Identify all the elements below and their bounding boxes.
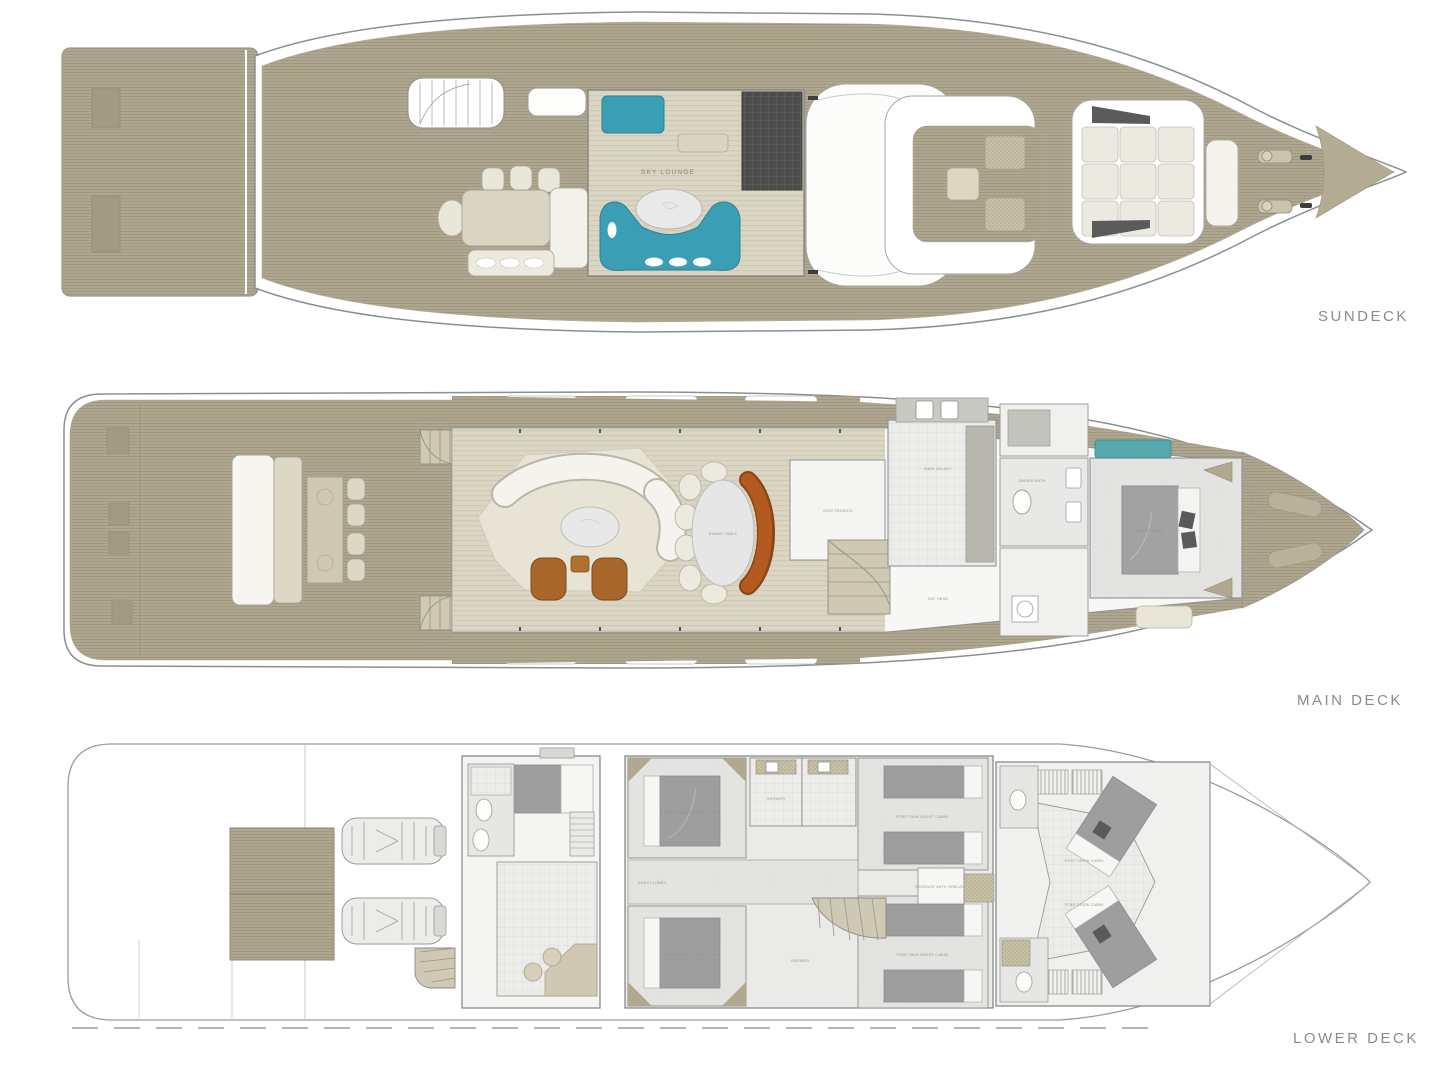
helm-table <box>985 198 1025 231</box>
salon-armchair <box>592 558 627 600</box>
tender-garage-hatch <box>230 828 334 960</box>
aft-table <box>307 477 343 583</box>
helm-table-small <box>947 168 979 200</box>
salon-armchair <box>531 558 566 600</box>
main-deck-plan: SIDE DECK SIDE DECK <box>64 392 1372 668</box>
jet-tender <box>342 818 446 864</box>
deck-hatch <box>112 600 132 624</box>
day-head-label: DAY HEAD <box>928 597 949 601</box>
storage-label: STORAGE WITH SHELVES <box>915 885 967 889</box>
owner-bath: OWNER BATH <box>1000 404 1088 636</box>
sundeck-stairs <box>408 78 504 128</box>
galley-sink <box>941 401 958 419</box>
deck-hatch <box>92 88 120 128</box>
lower-deck-title: LOWER DECK <box>1293 1030 1419 1047</box>
main-deck-title: MAIN DECK <box>1297 692 1403 709</box>
lower-deck-plan: PORT DOUBLE GUEST CABIN STBD DOUBLE GUES… <box>68 744 1370 1028</box>
deck-plan-drawing: SKY LOUNGE <box>0 0 1440 1080</box>
owner-bath-label: OWNER BATH <box>1018 479 1046 483</box>
main-galley-label: MAIN GALLEY <box>924 467 952 471</box>
stbd-double-label: STBD DOUBLE GUEST CABIN <box>661 953 719 957</box>
sky-lounge-table <box>636 189 702 229</box>
wet-bar <box>528 88 586 116</box>
galley-counter-side <box>966 426 994 562</box>
side-deck-label-top: SIDE DECK <box>423 417 446 421</box>
yacht-deck-plan-page: SKY LOUNGE <box>0 0 1440 1080</box>
port-twin-guest-cabin: PORT TWIN GUEST CABIN <box>858 758 988 870</box>
deck-hatch <box>107 428 129 454</box>
owner-cabin-label: OWNER CABIN <box>1133 529 1162 533</box>
galley-sink <box>916 401 933 419</box>
dining-table-label: DINING TABLE <box>709 532 738 536</box>
crew-stairs <box>570 812 594 856</box>
sky-lounge-daybed <box>678 134 728 152</box>
helm-seating <box>885 96 1041 274</box>
sundeck-title: SUNDECK <box>1318 308 1409 325</box>
midship-stairs <box>828 540 890 614</box>
sundeck-skylight-opening <box>742 92 802 190</box>
stbd-twin-label: STBD TWIN GUEST CABIN <box>896 953 948 957</box>
stbd-double-guest-cabin: STBD DOUBLE GUEST CABIN <box>628 906 746 1006</box>
forward-crew-cabins: PORT CREW CABIN STBD CREW CABIN <box>996 762 1210 1006</box>
deck-hatch <box>109 503 129 525</box>
aft-sofa <box>232 455 274 605</box>
sky-lounge-label: SKY LOUNGE <box>641 169 695 176</box>
port-twin-label: PORT TWIN GUEST CABIN <box>896 815 948 819</box>
shower-label-stbd: SHOWER <box>791 959 809 963</box>
salon-side-table <box>571 556 589 572</box>
crew-bathroom <box>468 764 514 856</box>
port-double-label: PORT DOUBLE GUEST CABIN <box>661 811 719 815</box>
forward-sunpad <box>1072 100 1204 244</box>
crew-quarters <box>462 748 600 1008</box>
owner-bed-pillows <box>1178 488 1200 572</box>
fwd-bathroom-stbd <box>1000 938 1048 1002</box>
bath-sink <box>1066 502 1081 522</box>
washer <box>1012 596 1038 622</box>
side-deck-label-bottom: SIDE DECK <box>423 643 446 647</box>
fwd-bathroom-port <box>1000 766 1038 828</box>
stbd-crew-label: STBD CREW CABIN <box>1065 903 1103 907</box>
salon-coffee-table <box>561 507 619 547</box>
aft-spiral-stairs <box>415 948 455 988</box>
bath-sink <box>1066 468 1081 488</box>
jet-tender <box>342 898 446 944</box>
bow-seat <box>1206 140 1238 226</box>
toilet <box>1013 490 1031 514</box>
sundeck-aft-platform <box>62 48 258 296</box>
guest-bathrooms-port: SHOWER <box>750 758 856 826</box>
sundeck-plan: SKY LOUNGE <box>62 12 1406 332</box>
sky-lounge: SKY LOUNGE <box>588 90 804 276</box>
guest-area: PORT DOUBLE GUEST CABIN STBD DOUBLE GUES… <box>625 756 994 1008</box>
deck-hatch <box>109 532 129 554</box>
helm-table <box>985 136 1025 169</box>
deck-hatch <box>92 196 120 252</box>
fwd-teal-bench <box>1095 440 1171 458</box>
crew-mess <box>497 862 597 996</box>
shower-label: SHOWER <box>767 797 785 801</box>
bow-foredeck <box>1316 126 1394 218</box>
electronics-label: ELECTRONICS <box>823 509 852 513</box>
sky-lounge-sofa-forward <box>602 96 664 133</box>
port-crew-label: PORT CREW CABIN <box>1065 859 1104 863</box>
guest-lobby: GUEST LOBBY <box>628 860 858 904</box>
guest-lobby-label: GUEST LOBBY <box>638 881 667 885</box>
